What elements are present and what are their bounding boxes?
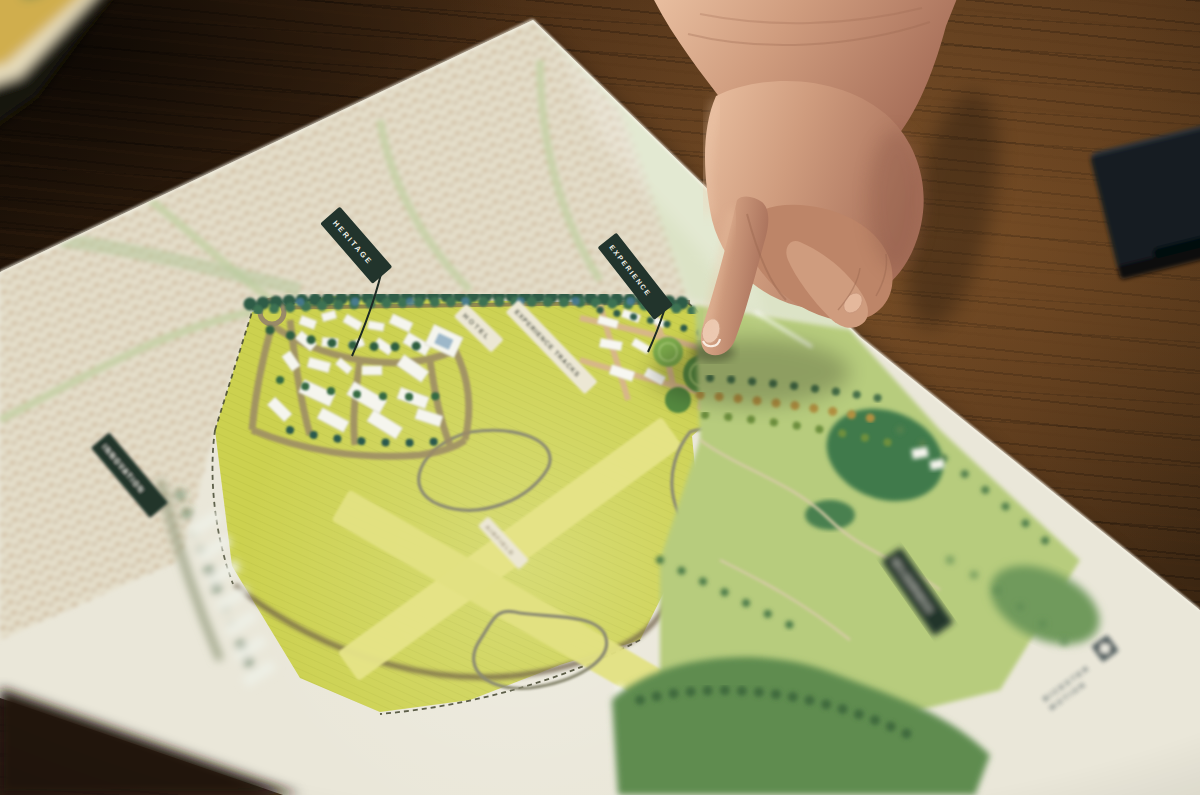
hand-shading (868, 130, 924, 270)
photo-of-masterplan-on-table: AIRFIELD BICESTER MOTION HERITAGE (0, 0, 1200, 795)
notebook (0, 0, 130, 150)
scene: AIRFIELD BICESTER MOTION HERITAGE (0, 0, 1200, 795)
dark-case (1089, 108, 1200, 280)
masterplan-map-sheet: AIRFIELD BICESTER MOTION (0, 0, 1200, 795)
